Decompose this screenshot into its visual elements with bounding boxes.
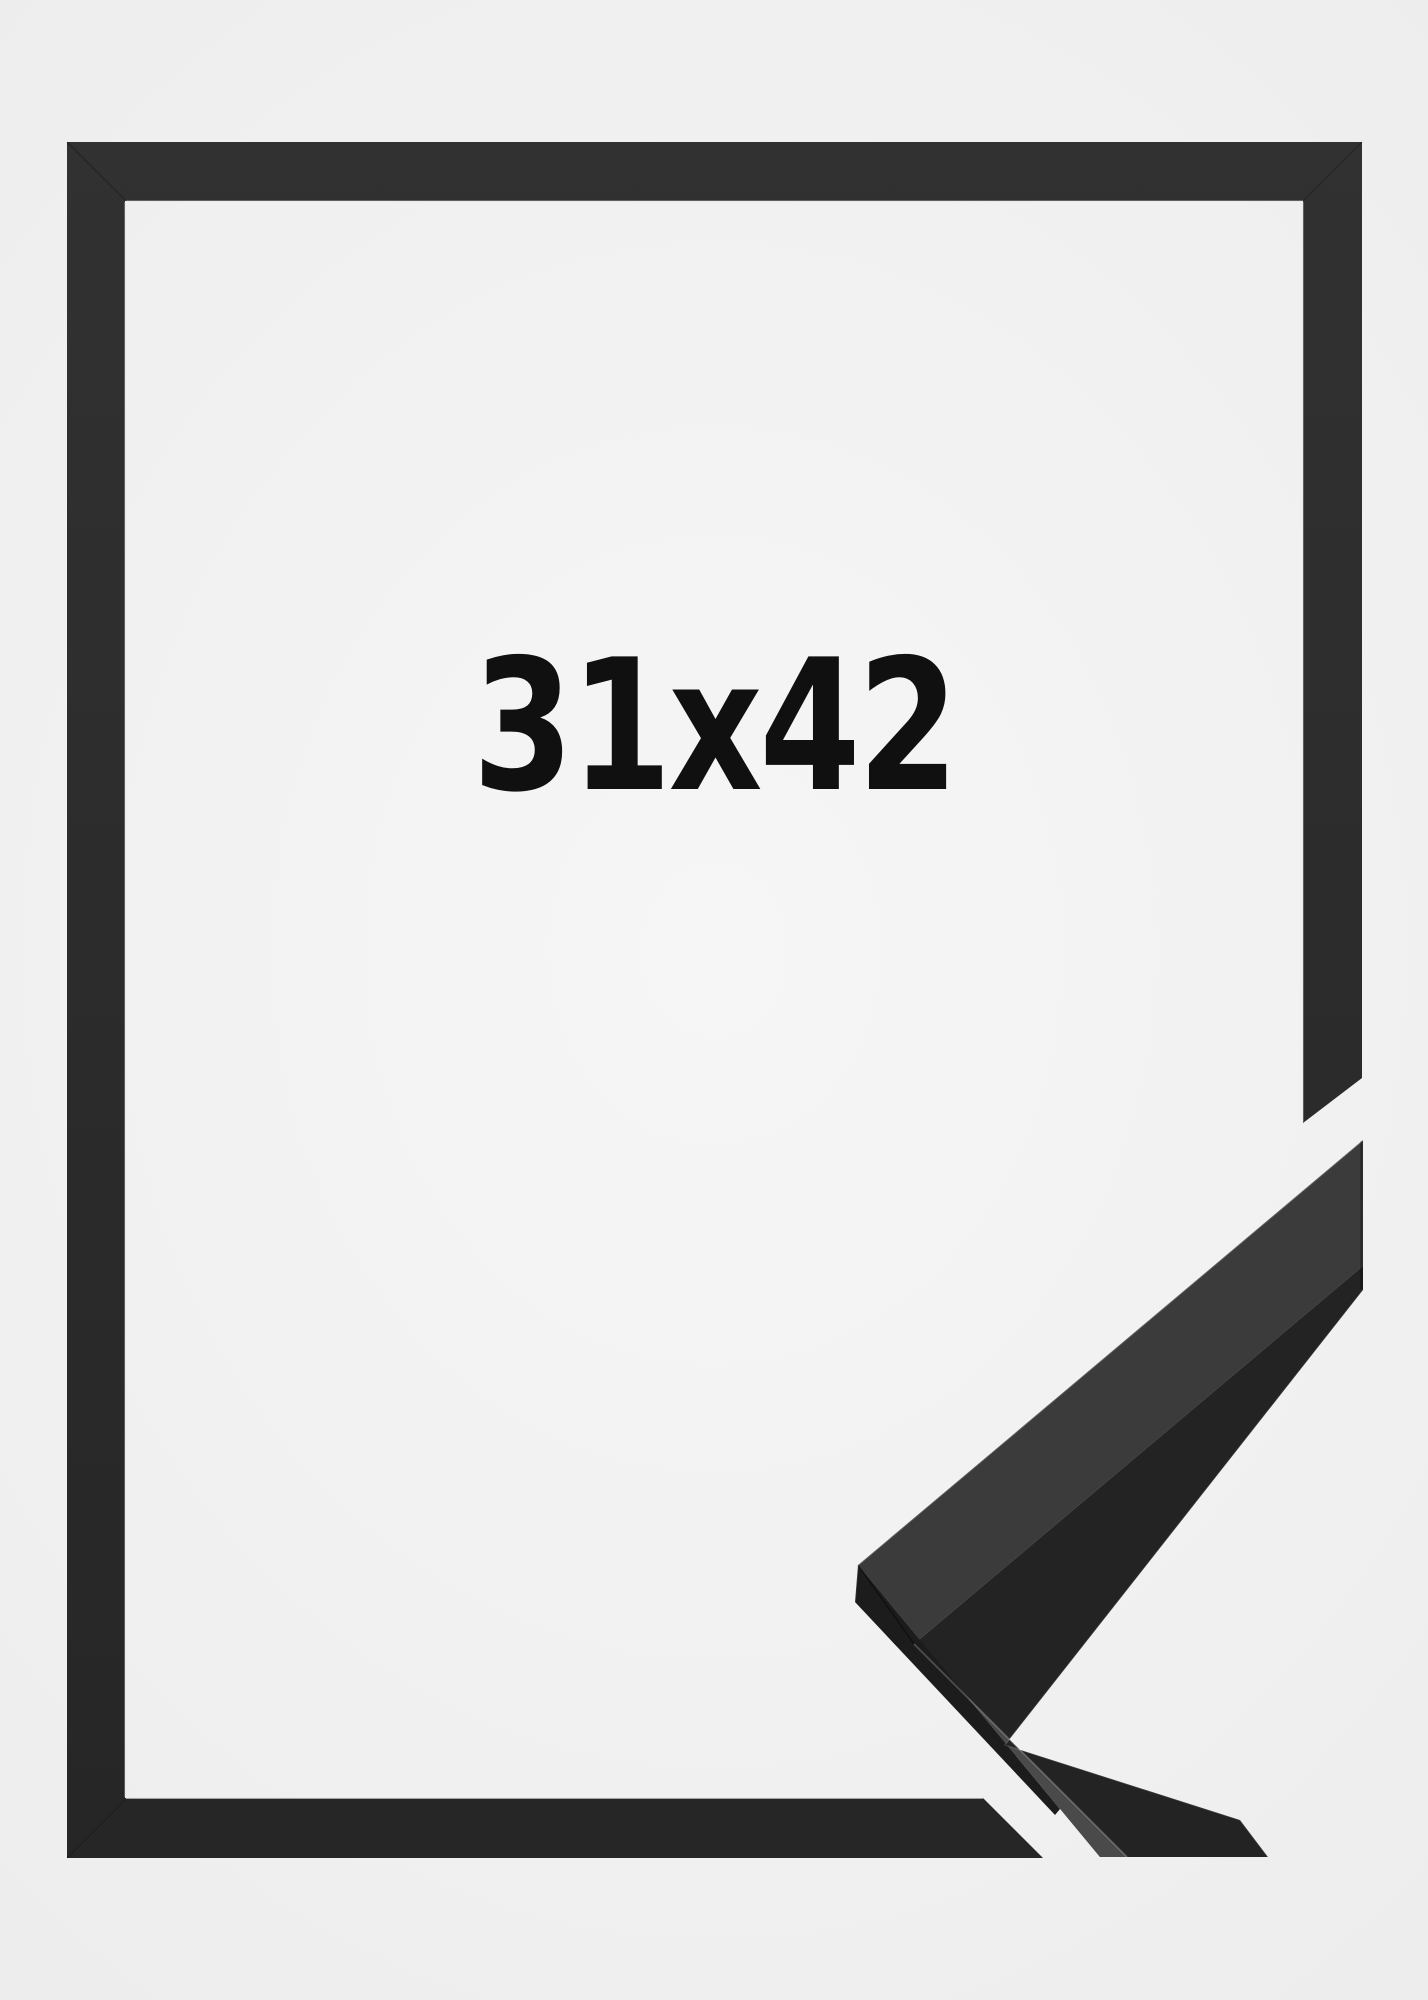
frame-moulding <box>67 142 1362 1858</box>
picture-frame-graphic <box>0 0 1428 2000</box>
size-label: 31x42 <box>472 635 955 817</box>
product-photo: 31x42 <box>0 0 1428 2000</box>
